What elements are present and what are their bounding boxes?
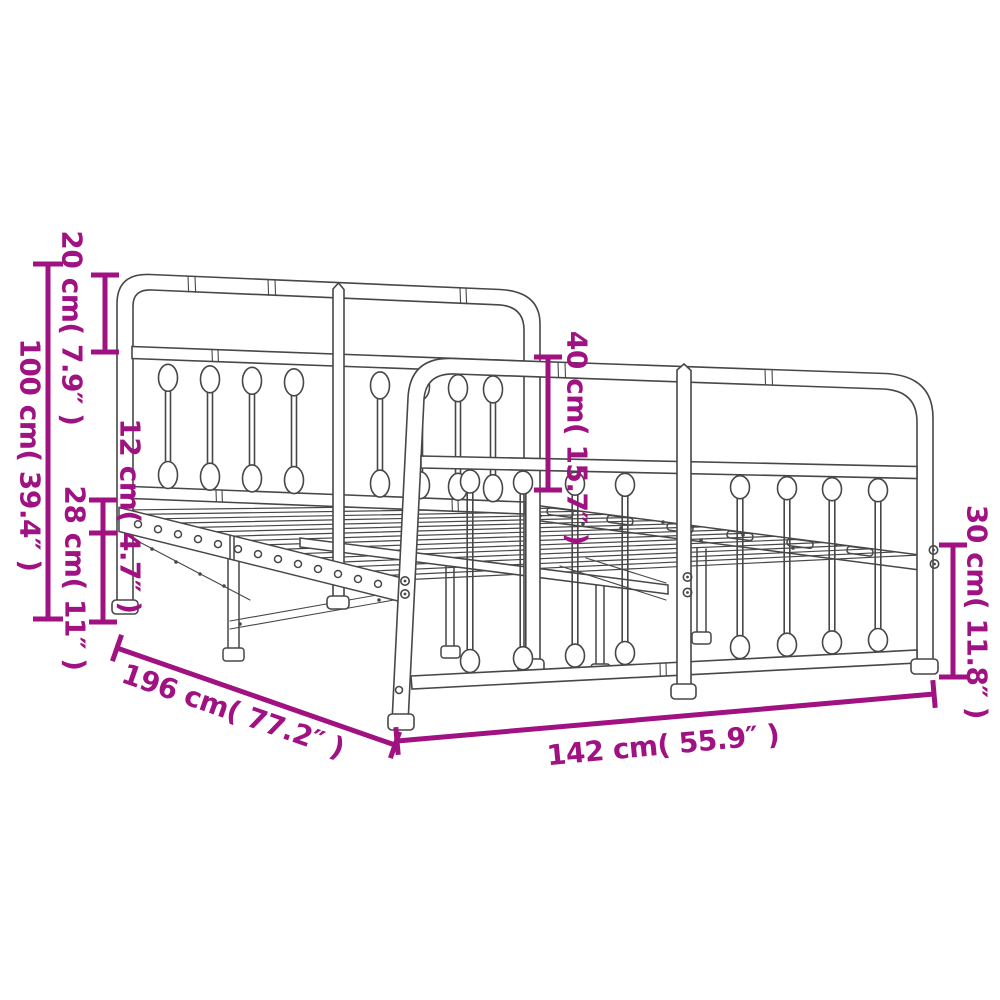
headboard-center-post <box>333 283 344 597</box>
footboard-foot-center <box>671 684 696 699</box>
dim-line-20cm <box>91 275 119 352</box>
footboard-center-post <box>677 364 691 686</box>
dim-label-40cm: 40 cm( 15.7″ ) <box>561 331 594 545</box>
footboard-bottom-rail <box>411 650 917 689</box>
rail-mid-leg <box>223 559 244 661</box>
footboard-foot-right <box>911 659 938 674</box>
dim-label-30cm: 30 cm( 11.8″ ) <box>961 505 994 719</box>
far-rail-leg <box>692 548 711 644</box>
dim-label-28cm: 28 cm( 11″ ) <box>59 485 92 670</box>
bed-frame-line-drawing <box>0 0 1000 1000</box>
dim-label-12cm: 12 cm( 4.7″ ) <box>114 418 147 613</box>
dim-label-100cm: 100 cm( 39.4″ ) <box>14 338 47 571</box>
headboard-foot-center <box>327 596 349 609</box>
footboard-foot-left <box>388 714 414 730</box>
headboard <box>112 274 544 673</box>
headboard-spindles <box>159 364 503 501</box>
dim-label-20cm: 20 cm( 7.9″ ) <box>56 230 89 425</box>
bed-frame-dimension-diagram: 20 cm( 7.9″ ) 100 cm( 39.4″ ) 12 cm( 4.7… <box>0 0 1000 1000</box>
